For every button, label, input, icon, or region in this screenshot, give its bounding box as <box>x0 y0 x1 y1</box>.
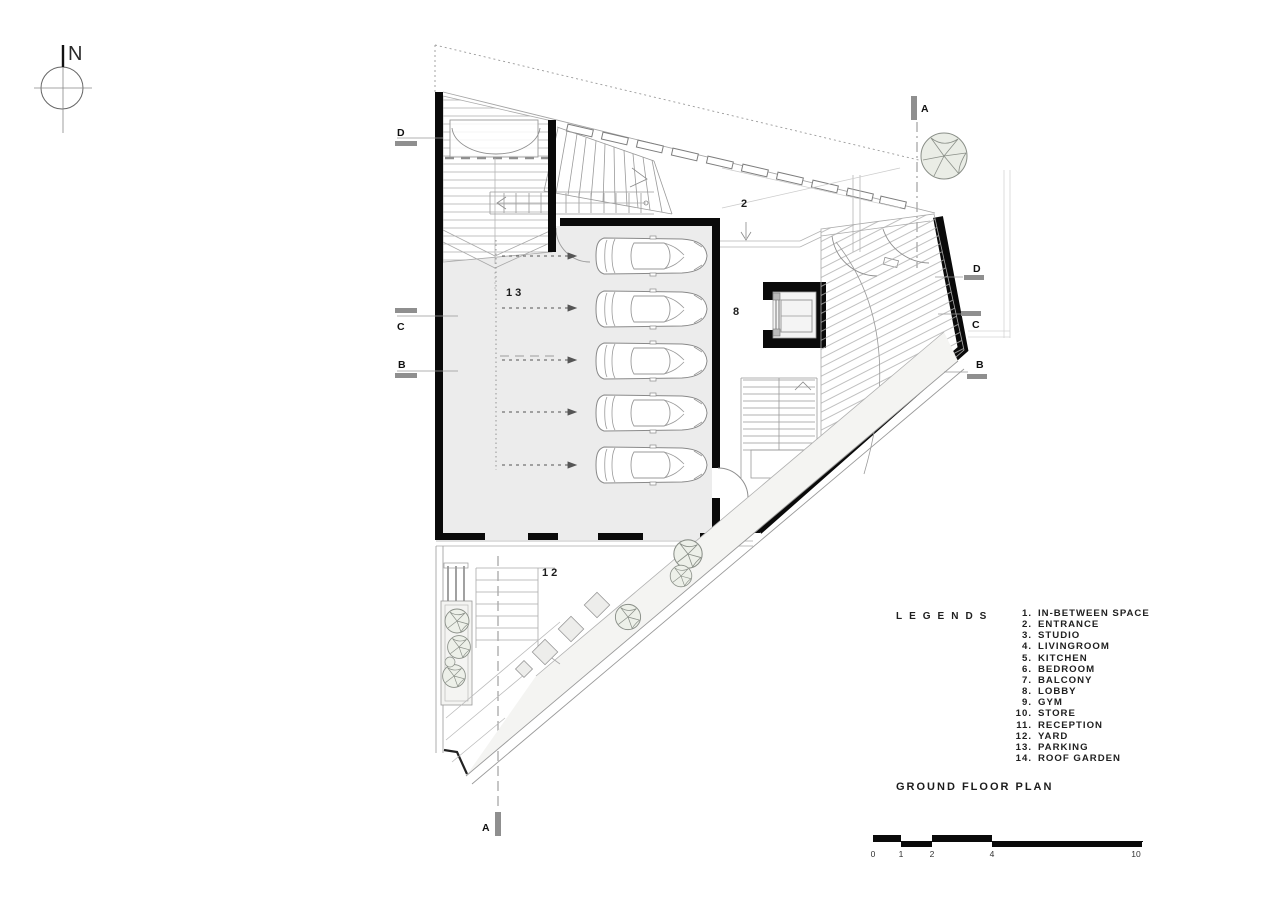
legend-item: 3.STUDIO <box>1000 630 1280 641</box>
scale-tick: 4 <box>984 849 1000 859</box>
scale-bar-segment <box>873 835 901 841</box>
scale-tick: 0 <box>865 849 881 859</box>
section-marker-b-right: B <box>976 359 984 371</box>
section-marker-a-top: A <box>921 103 929 115</box>
label-entrance: 2 <box>741 198 750 210</box>
label-yard: 12 <box>542 567 560 579</box>
ground-floor-plan-sheet: N <box>0 0 1280 905</box>
site-tree <box>921 133 967 179</box>
floor-plan-drawing: N <box>0 0 1280 905</box>
scale-bar-segment <box>901 841 932 847</box>
legend-item: 12.YARD <box>1000 731 1280 742</box>
label-parking: 13 <box>506 287 524 299</box>
north-arrow: N <box>34 43 92 133</box>
section-marker-c-right: C <box>972 319 980 331</box>
legend-item: 1.IN-BETWEEN SPACE <box>1000 608 1280 619</box>
scale-bar-segment <box>992 841 1142 847</box>
legend-item: 8.LOBBY <box>1000 686 1280 697</box>
skylight-strip <box>566 124 906 209</box>
scale-tick: 10 <box>1128 849 1144 859</box>
legend-item: 9.GYM <box>1000 697 1280 708</box>
legend-item: 11.RECEPTION <box>1000 720 1280 731</box>
section-marker-d-left: D <box>397 127 405 139</box>
legend-item: 10.STORE <box>1000 708 1280 719</box>
legend-items: 1.IN-BETWEEN SPACE 2.ENTRANCE 3.STUDIO 4… <box>1000 608 1280 764</box>
section-marker-d-right: D <box>973 263 981 275</box>
legend-item: 14.ROOF GARDEN <box>1000 753 1280 764</box>
legend-item: 4.LIVINGROOM <box>1000 641 1280 652</box>
elevator <box>763 282 826 348</box>
legend-item: 2.ENTRANCE <box>1000 619 1280 630</box>
scale-bar-segment <box>932 835 992 841</box>
legend-item: 6.BEDROOM <box>1000 664 1280 675</box>
legend-item: 7.BALCONY <box>1000 675 1280 686</box>
north-label: N <box>68 43 82 65</box>
scale-tick: 2 <box>924 849 940 859</box>
section-marker-c-left: C <box>397 321 405 333</box>
legend-item: 13.PARKING <box>1000 742 1280 753</box>
plan-title: GROUND FLOOR PLAN <box>896 781 1053 793</box>
section-marker-b-left: B <box>398 359 406 371</box>
legend-heading: LEGENDS <box>896 611 993 622</box>
label-lobby: 8 <box>733 306 742 318</box>
legend-item: 5.KITCHEN <box>1000 653 1280 664</box>
section-marker-a-bottom: A <box>482 822 490 834</box>
scale-tick: 1 <box>893 849 909 859</box>
